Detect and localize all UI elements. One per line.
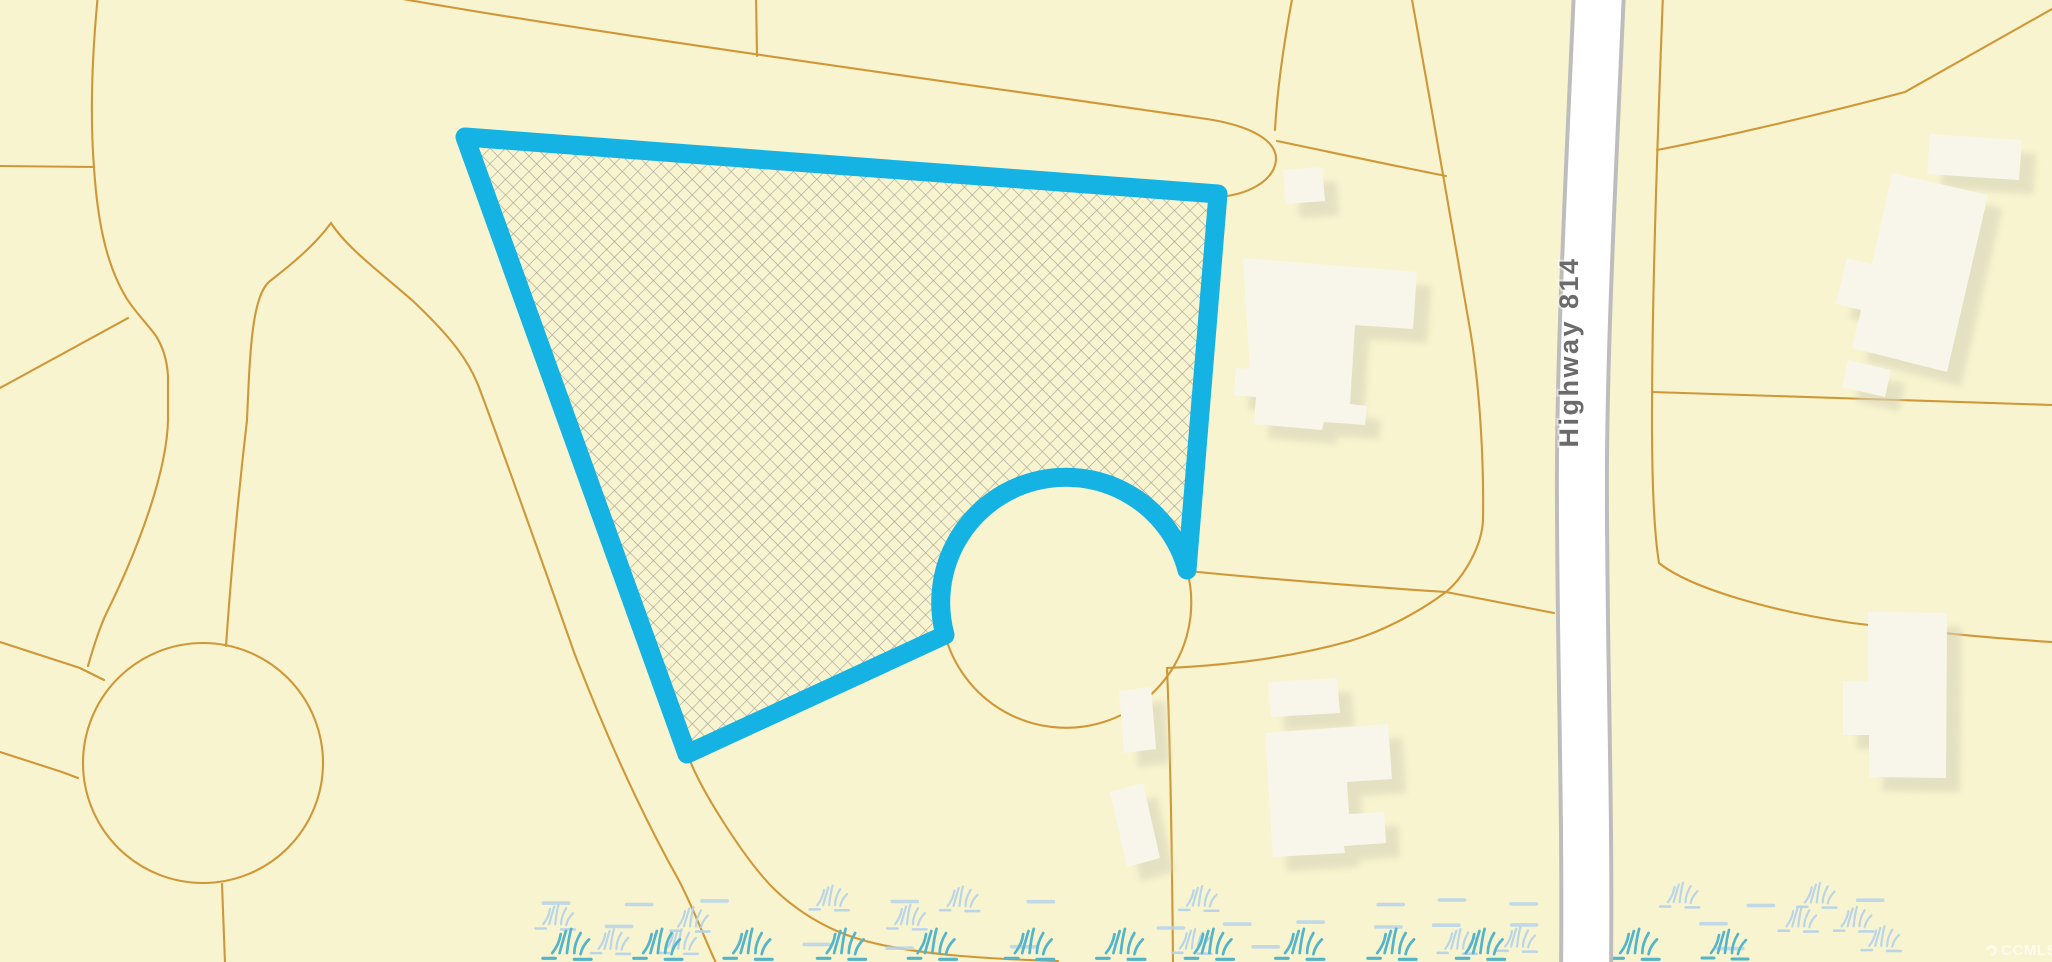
wetland-dash [1509, 902, 1538, 906]
building [1927, 134, 2022, 180]
building [1283, 167, 1325, 204]
wetland-dash [1251, 945, 1280, 949]
wetland-dash [1747, 904, 1776, 908]
wetland-dash [1432, 923, 1461, 927]
parcel-boundary-line [756, 0, 757, 56]
watermark-text: CCMLS [2001, 942, 2052, 959]
wetland-dash [890, 900, 919, 904]
wetland-dash [1376, 903, 1405, 907]
parcel-boundary-line [0, 166, 94, 167]
road-label: Highway 814 [1554, 256, 1584, 447]
wetland-dash [1156, 926, 1185, 930]
wetland-dash [542, 901, 571, 905]
building [1268, 678, 1340, 717]
wetland-dash [1223, 922, 1252, 926]
building [1119, 687, 1156, 753]
wetland-dash [1027, 900, 1056, 904]
wetland-dash [1438, 898, 1467, 902]
wetland-dash [605, 925, 634, 929]
wetland-dash [885, 946, 914, 950]
wetland-dash [625, 903, 654, 907]
wetland-dash [700, 899, 729, 903]
watermark-logo-icon [1984, 943, 1999, 958]
road-highway-814 [1582, 0, 1599, 962]
wetland-dash [1510, 923, 1539, 927]
watermark: CCMLS [1986, 942, 2052, 959]
wetland-dash [803, 943, 832, 947]
wetland-dash [1374, 925, 1403, 929]
wetland-dash [1856, 898, 1885, 902]
wetland-dash [1296, 920, 1325, 924]
wetland-dash [1699, 922, 1728, 926]
road-surface [1582, 0, 1599, 962]
map-canvas[interactable]: Highway 814 CCMLS [0, 0, 2052, 962]
